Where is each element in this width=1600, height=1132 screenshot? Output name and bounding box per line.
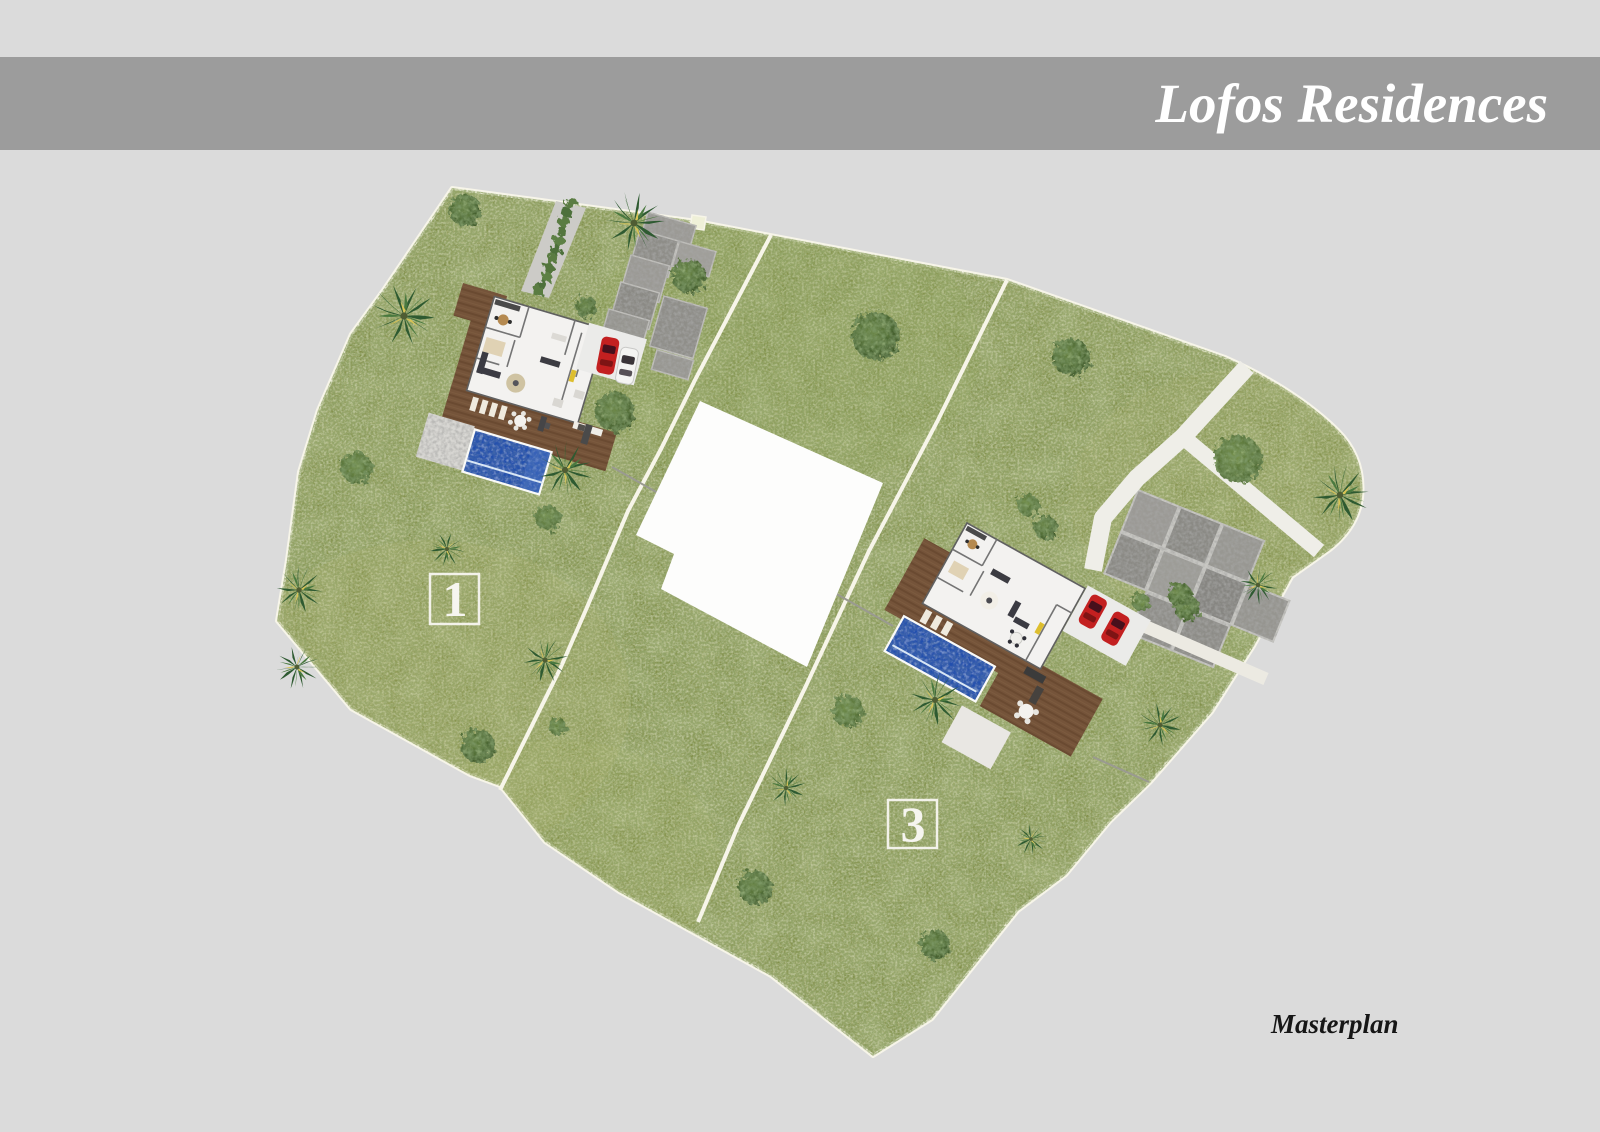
svg-text:Lofos Residences: Lofos Residences — [1154, 73, 1548, 134]
svg-text:3: 3 — [901, 796, 926, 852]
svg-text:1: 1 — [443, 571, 468, 627]
svg-text:Masterplan: Masterplan — [1270, 1009, 1399, 1039]
